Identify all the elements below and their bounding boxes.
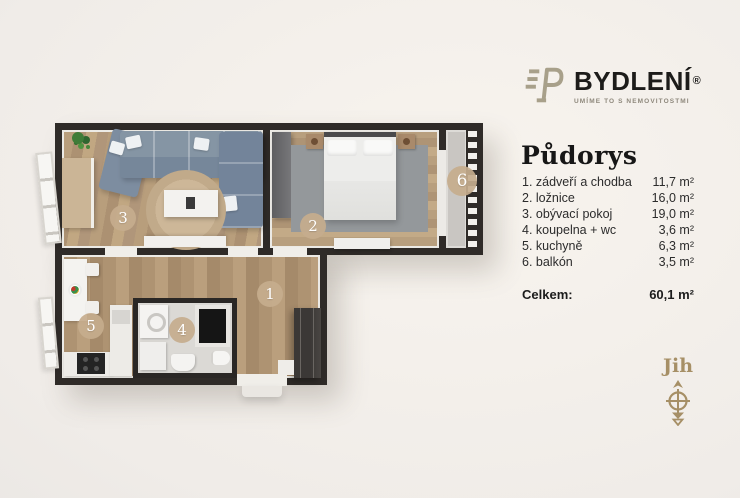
bathroom-cabinet [140, 342, 166, 370]
total-area: 60,1 m² [649, 287, 694, 302]
room-bedroom [270, 130, 439, 248]
room-living [62, 130, 263, 248]
kitchen-sink [112, 310, 130, 324]
bedroom-wardrobe [272, 132, 291, 218]
room-label: 2. ložnice [522, 190, 575, 206]
brand-logo: BYDLENÍ® UMÍME TO S NEMOVITOSTMI [518, 62, 701, 108]
sideboard [62, 158, 94, 228]
shower [195, 305, 230, 347]
bed-pillow [363, 140, 393, 156]
nightstand-left [306, 134, 323, 149]
compass-direction-label: Jih [648, 355, 708, 377]
room-label: 4. koupelna + wc [522, 222, 616, 238]
plate-icon [68, 283, 82, 297]
room-area: 16,0 m² [652, 190, 694, 206]
room-list-row: 3. obývací pokoj 19,0 m² [522, 206, 694, 222]
room-label: 5. kuchyně [522, 238, 582, 254]
room-list-row: 4. koupelna + wc 3,6 m² [522, 222, 694, 238]
plant-icon [72, 132, 84, 144]
tv-stand [144, 236, 226, 247]
room-list-row: 1. zádveří a chodba 11,7 m² [522, 174, 694, 190]
nightstand-right [398, 134, 415, 149]
room-label: 3. obývací pokoj [522, 206, 612, 222]
entrance-door [237, 374, 287, 386]
room-area: 19,0 m² [652, 206, 694, 222]
room-area: 3,6 m² [659, 222, 694, 238]
bed-pillow [327, 140, 357, 156]
room-label: 1. zádveří a chodba [522, 174, 632, 190]
room-label: 6. balkón [522, 254, 573, 270]
balcony-door [439, 150, 446, 236]
registered-mark: ® [693, 75, 702, 87]
bathroom-sink [171, 354, 195, 371]
brand-tagline: UMÍME TO S NEMOVITOSTMI [574, 98, 701, 105]
page-title: Půdorys [521, 141, 637, 170]
room-badge-balcony: 6 [447, 166, 477, 196]
room-area: 6,3 m² [659, 238, 694, 254]
door-opening-living [228, 247, 258, 257]
bed-bench [334, 238, 390, 249]
hallway-wardrobe [294, 308, 321, 378]
room-badge-living: 3 [110, 205, 136, 231]
room-area: 3,5 m² [659, 254, 694, 270]
sofa-pillow [193, 137, 210, 151]
toilet [211, 351, 230, 365]
compass: Jih [648, 355, 708, 431]
total-label: Celkem: [522, 287, 573, 302]
washing-machine [140, 305, 168, 338]
compass-icon [661, 380, 695, 426]
door-opening-kitchen [105, 247, 137, 257]
kitchen-chair [86, 263, 99, 276]
room-badge-hallway: 1 [257, 281, 283, 307]
brand-name: BYDLENÍ® [574, 68, 701, 94]
room-list-row: 5. kuchyně 6,3 m² [522, 238, 694, 254]
room-list: 1. zádveří a chodba 11,7 m² 2. ložnice 1… [522, 174, 694, 302]
brand-name-text: BYDLENÍ [574, 66, 692, 96]
cooktop [77, 353, 105, 374]
room-badge-bathroom: 4 [169, 317, 195, 343]
entry-cabinet [278, 360, 294, 375]
table-decor [186, 197, 195, 209]
brand-text: BYDLENÍ® UMÍME TO S NEMOVITOSTMI [574, 62, 701, 105]
coffee-table [164, 190, 218, 217]
brand-logo-icon [518, 62, 564, 108]
entrance-mat [242, 386, 282, 397]
double-bed [324, 132, 396, 220]
page: 1 2 3 4 5 6 BYDLENÍ® UMÍME TO S NEMOVITO… [0, 0, 740, 498]
room-badge-bedroom: 2 [300, 213, 326, 239]
room-list-row: 2. ložnice 16,0 m² [522, 190, 694, 206]
kitchen-chair [86, 301, 99, 314]
room-area: 11,7 m² [653, 174, 694, 190]
room-list-row: 6. balkón 3,5 m² [522, 254, 694, 270]
room-badge-kitchen: 5 [78, 313, 104, 339]
total-row: Celkem: 60,1 m² [522, 287, 694, 302]
door-opening-bedroom [273, 247, 307, 257]
